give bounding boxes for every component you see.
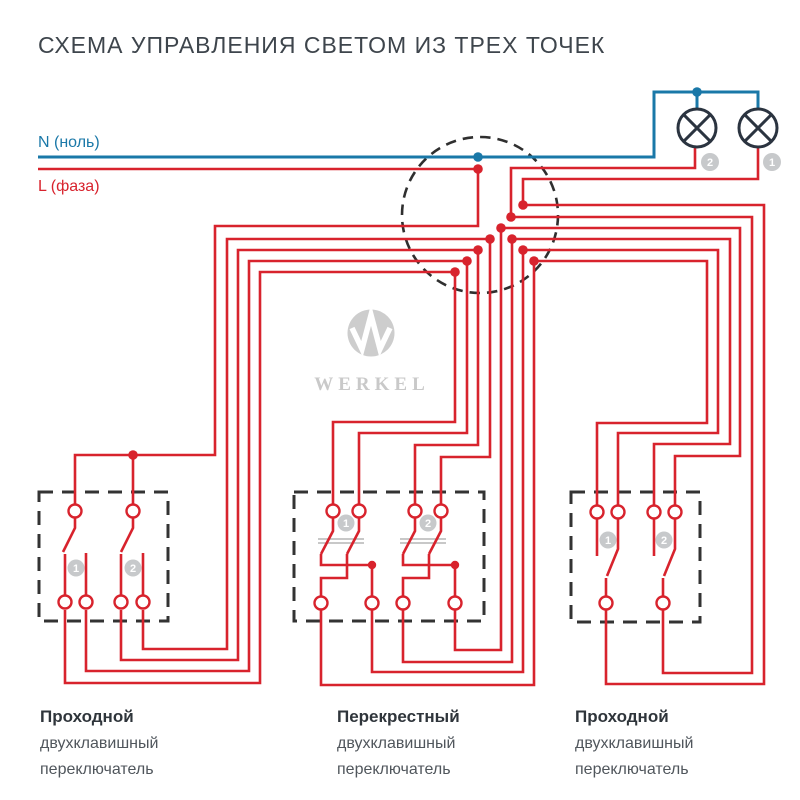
middle-switch-symbol: 1 2 (315, 505, 462, 610)
neutral-junction-dot (473, 152, 483, 162)
lamp-cross-icon (684, 115, 711, 142)
neutral-wire (38, 92, 758, 157)
terminal (137, 596, 150, 609)
right-switch-caption: Проходной двухклавишный переключатель (575, 707, 693, 778)
connection-dot (496, 223, 506, 233)
phase-wire-label: L (фаза) (38, 178, 100, 195)
terminal (409, 505, 422, 518)
terminal (397, 597, 410, 610)
terminal (69, 505, 82, 518)
left-switch-symbol: 1 2 (59, 505, 150, 609)
lamp2-badge-number: 2 (707, 157, 713, 169)
terminal (115, 596, 128, 609)
connection-dot (518, 200, 528, 210)
caption-line2: двухклавишный (575, 735, 693, 752)
cross-link (403, 554, 429, 596)
terminal (657, 597, 670, 610)
page-title: СХЕМА УПРАВЛЕНИЯ СВЕТОМ ИЗ ТРЕХ ТОЧЕК (38, 32, 605, 58)
terminal (648, 506, 661, 519)
diagram-canvas: СХЕМА УПРАВЛЕНИЯ СВЕТОМ ИЗ ТРЕХ ТОЧЕК WE… (0, 0, 800, 800)
cross-link (321, 554, 347, 596)
gang1-coupling-bar (318, 539, 364, 543)
terminal (127, 505, 140, 518)
connection-dot (518, 245, 528, 255)
caption-line3: переключатель (575, 761, 689, 778)
gang2-badge-number: 2 (661, 535, 667, 547)
connection-dot (128, 450, 138, 460)
caption-line1: Проходной (575, 707, 669, 726)
terminal (315, 597, 328, 610)
right-switch-symbol: 1 2 (591, 506, 682, 610)
lamp2-return-wire (511, 147, 752, 673)
phase-feed-wire (38, 169, 478, 504)
connection-dot (473, 164, 483, 174)
terminal (449, 597, 462, 610)
caption-line3: переключатель (337, 761, 451, 778)
caption-line3: переключатель (40, 761, 154, 778)
cross-link-dot (451, 561, 459, 569)
werkel-watermark: WERKEL (314, 310, 430, 396)
connection-dot (485, 234, 495, 244)
caption-line2: двухклавишный (40, 735, 158, 752)
terminal (435, 505, 448, 518)
switch-lever (321, 518, 333, 554)
wiring-diagram: СХЕМА УПРАВЛЕНИЯ СВЕТОМ ИЗ ТРЕХ ТОЧЕК WE… (0, 0, 800, 800)
neutral-split-dot (692, 87, 702, 97)
terminal (327, 505, 340, 518)
connection-dot (529, 256, 539, 266)
terminal (591, 506, 604, 519)
watermark-brand-text: WERKEL (314, 374, 430, 395)
terminal (600, 597, 613, 610)
switch-lever (63, 518, 75, 552)
switch-lever (121, 518, 133, 552)
lamp1-badge-number: 1 (769, 157, 775, 169)
gang1-badge-number: 1 (605, 535, 611, 547)
terminal (669, 506, 682, 519)
terminal (80, 596, 93, 609)
gang1-badge-number: 1 (73, 563, 79, 575)
lamp-2: 2 (678, 109, 719, 171)
caption-line1: Перекрестный (337, 707, 460, 726)
gang2-badge-number: 2 (130, 563, 136, 575)
connection-dot (506, 212, 516, 222)
switch-lever (403, 518, 415, 554)
connection-dot (473, 245, 483, 255)
cross-link-dot (368, 561, 376, 569)
connection-dot (507, 234, 517, 244)
gang2-coupling-bar (400, 539, 446, 543)
neutral-wiring (38, 87, 758, 162)
lamp-cross-icon (745, 115, 772, 142)
caption-line2: двухклавишный (337, 735, 455, 752)
gang1-badge-number: 1 (343, 518, 349, 530)
middle-switch-caption: Перекрестный двухклавишный переключатель (337, 707, 460, 778)
terminal (366, 597, 379, 610)
terminal (612, 506, 625, 519)
terminal (353, 505, 366, 518)
left-switch-caption: Проходной двухклавишный переключатель (40, 707, 158, 778)
connection-dot (462, 256, 472, 266)
lamp-1: 1 (739, 109, 781, 171)
caption-line1: Проходной (40, 707, 134, 726)
gang2-badge-number: 2 (425, 518, 431, 530)
connection-dot (450, 267, 460, 277)
neutral-wire-label: N (ноль) (38, 134, 100, 151)
terminal (59, 596, 72, 609)
